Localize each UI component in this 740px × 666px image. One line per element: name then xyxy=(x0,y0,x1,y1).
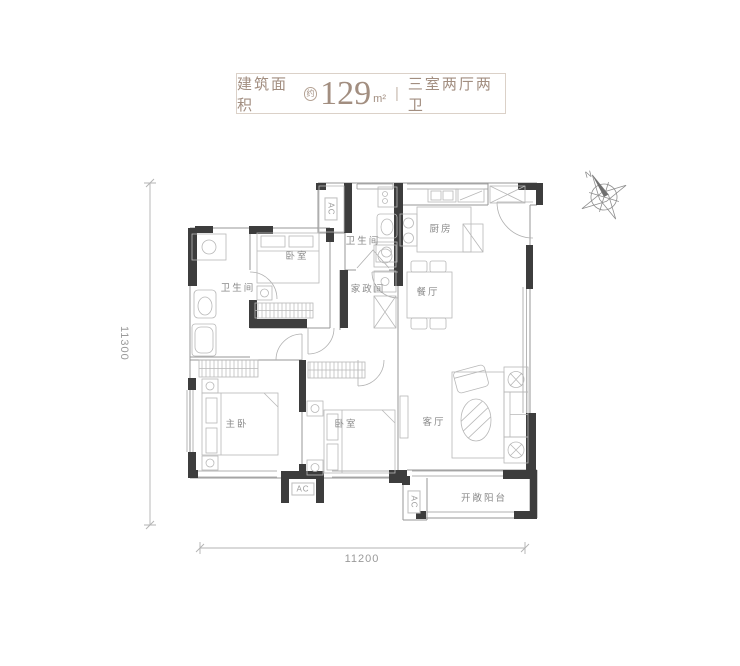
furniture-master xyxy=(199,360,278,470)
room-label-dining: 餐厅 xyxy=(416,284,439,298)
ac-tag-bottom-right: AC xyxy=(408,490,421,513)
room-label-balcony: 开敞阳台 xyxy=(461,490,507,504)
ac-tag-bottom-middle: AC xyxy=(291,483,314,496)
furniture-kitchen xyxy=(400,186,525,252)
furniture-bath2 xyxy=(376,187,397,262)
ac-tag-top: AC xyxy=(325,197,338,220)
room-label-bath1: 卫生间 xyxy=(221,280,256,294)
door-arcs xyxy=(250,202,533,386)
room-label-kitchen: 厨房 xyxy=(429,221,452,235)
compass-north-label: N xyxy=(584,169,593,180)
furniture xyxy=(192,186,528,475)
dimension-left: 11300 xyxy=(118,326,130,361)
compass-icon: N xyxy=(570,163,638,231)
room-label-bedroom2: 卧室 xyxy=(334,416,357,430)
furniture-bath1 xyxy=(192,234,226,356)
furniture-bedroom1 xyxy=(255,233,319,318)
floor-plan-drawing: N xyxy=(0,0,740,666)
dimension-bottom: 11200 xyxy=(332,553,392,565)
room-label-bath2: 卫生间 xyxy=(346,233,381,247)
room-label-living: 客厅 xyxy=(422,414,445,428)
furniture-living xyxy=(400,364,528,463)
room-label-bedroom1: 卧室 xyxy=(285,248,308,262)
floor-plan-page: 建筑面积 约 129 m² | 三室两厅两卫 xyxy=(0,0,740,666)
room-label-master: 主卧 xyxy=(225,416,248,430)
room-label-laundry: 家政间 xyxy=(351,281,386,295)
